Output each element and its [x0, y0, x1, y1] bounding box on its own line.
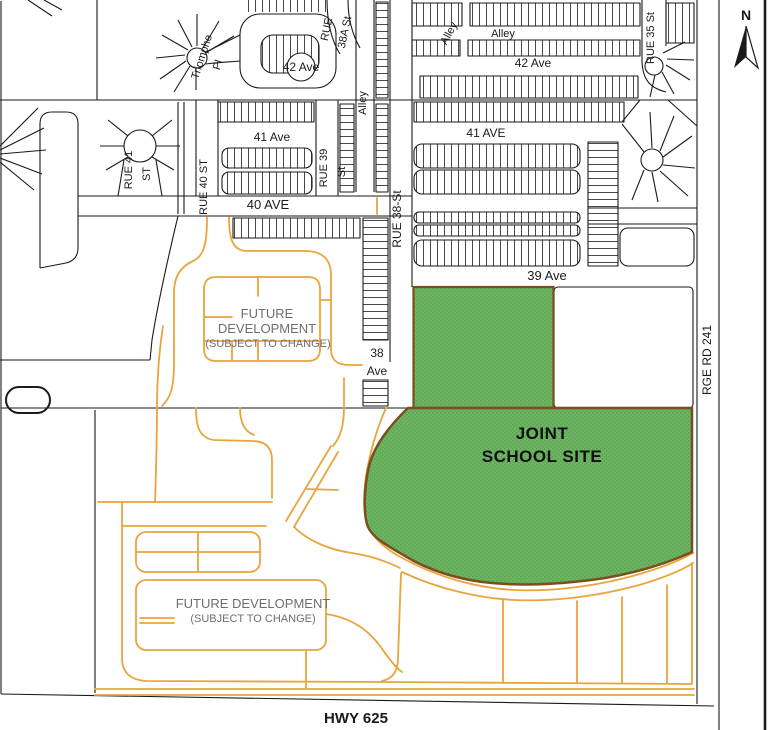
future-diagonal-road [286, 446, 338, 527]
future-road [333, 378, 344, 446]
north-label: N [741, 7, 751, 23]
future-block-dividers [140, 618, 174, 623]
north-arrow-right-half [746, 26, 758, 68]
lot-row [412, 3, 462, 26]
rue38-corridor-edges [390, 0, 412, 362]
lot-row [222, 148, 312, 168]
west-lane-outline [40, 112, 78, 268]
street-label-42ave-west: 42 Ave [283, 60, 320, 74]
street-label-39ave: 39 Ave [527, 268, 567, 283]
lot-strip [363, 380, 388, 406]
vacant-parcel [554, 287, 693, 408]
culdesac-bulb [641, 149, 663, 171]
lot-strip [363, 218, 388, 340]
lot-row [412, 40, 460, 56]
street-label-38ave-2: Ave [367, 364, 388, 378]
street-label-42ave-east: 42 Ave [515, 56, 552, 70]
subdivision-map: N Triomphe Pl 42 Ave 42 Ave RUE 38A St A… [0, 0, 771, 730]
lot-row [414, 225, 580, 236]
future-block-dividers [136, 532, 260, 572]
street-label-rue41-2: ST [141, 167, 153, 181]
school-site-north-parcel [414, 287, 554, 408]
future-road [306, 614, 402, 688]
zone-label-future-dev-north-1: FUTURE [241, 306, 294, 321]
ave42-north-lots [246, 0, 326, 12]
lot-row [470, 3, 640, 26]
lot-row [414, 240, 580, 266]
north-arrow-left-half [734, 26, 746, 68]
zone-label-future-dev-south-1: FUTURE DEVELOPMENT [176, 596, 331, 611]
zone-label-future-dev-south-2: (SUBJECT TO CHANGE) [190, 613, 315, 625]
ave40-corridor-edges [78, 196, 412, 216]
street-label-41ave-west: 41 Ave [254, 130, 291, 144]
future-road [98, 502, 272, 526]
future-road [382, 573, 401, 681]
street-label-38ave-1: 38 [370, 346, 384, 360]
culdesac-fan [622, 100, 697, 202]
future-collector [155, 326, 163, 502]
street-label-hwy-625: HWY 625 [324, 710, 388, 727]
lot-strip [588, 142, 618, 266]
street-label-rue38a-2: 38A St [336, 15, 354, 49]
lot-row [666, 3, 694, 43]
lot-strip [340, 104, 354, 192]
street-label-rue40: RUE 40 ST [198, 159, 210, 215]
street-label-rue35: RUE 35 St [645, 12, 657, 64]
future-collector [162, 217, 207, 406]
lot-row [233, 218, 360, 238]
lot-row [414, 170, 580, 194]
future-road [196, 408, 272, 498]
lot-row [218, 102, 314, 122]
zone-label-school-site-1: JOINT [516, 424, 569, 443]
street-label-alley-vertical: Alley [357, 91, 369, 115]
street-label-rue38: RUE 38-St [390, 190, 404, 248]
zone-label-future-dev-north-2: DEVELOPMENT [218, 321, 316, 336]
walkway-lines [178, 102, 184, 214]
street-label-40ave: 40 AVE [247, 197, 290, 212]
street-label-rue39-2: St [336, 167, 348, 177]
street-label-rge-rd-241: RGE RD 241 [700, 325, 714, 395]
street-label-alley-horizontal: Alley [491, 28, 515, 40]
lot-row [414, 144, 580, 168]
zone-label-school-site-2: SCHOOL SITE [482, 447, 602, 466]
lot-strip [376, 2, 388, 98]
lot-row [222, 172, 312, 194]
lot-row [420, 76, 638, 98]
zone-label-future-dev-north-3: (SUBJECT TO CHANGE) [205, 338, 330, 350]
east-white-block [620, 228, 694, 266]
lot-row [468, 40, 640, 56]
street-label-triomphe-2: Pl [211, 59, 225, 72]
lot-row [414, 212, 580, 223]
pond-outline [6, 387, 50, 413]
north-arrow [734, 26, 758, 68]
lot-strip [376, 104, 388, 192]
subdivision-plan-page: N Triomphe Pl 42 Ave 42 Ave RUE 38A St A… [0, 0, 771, 730]
corner-lot-lines [28, 0, 62, 16]
lot-row [414, 102, 624, 122]
future-road [240, 408, 254, 435]
street-label-rue39-1: RUE 39 [318, 149, 330, 188]
west-culdesac-fan [0, 108, 46, 190]
hwy-frontage-road [95, 689, 694, 695]
street-label-41ave-east: 41 AVE [466, 126, 505, 140]
street-label-rue41-1: RUE 41 [123, 151, 135, 190]
